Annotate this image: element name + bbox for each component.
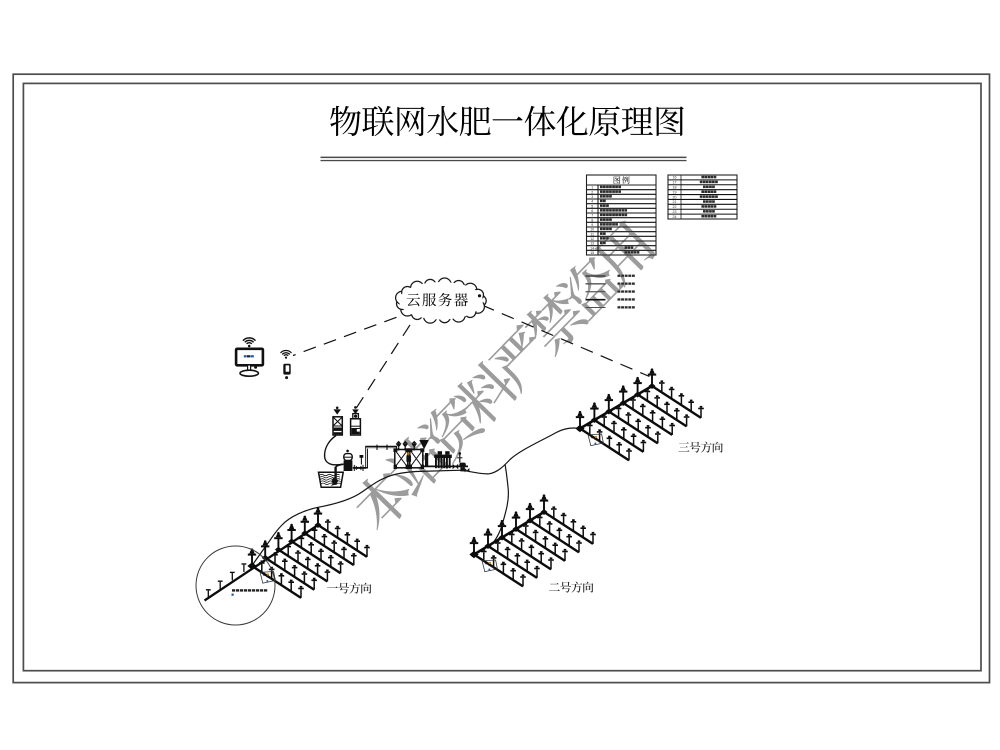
svg-text:5: 5 (591, 204, 593, 208)
svg-text:1: 1 (591, 186, 593, 190)
svg-text:4: 4 (591, 200, 593, 204)
svg-text:24: 24 (673, 215, 677, 219)
svg-text:16: 16 (673, 176, 677, 180)
svg-text:13: 13 (590, 242, 594, 246)
svg-text:18: 18 (673, 186, 677, 190)
svg-text:23: 23 (673, 210, 677, 214)
svg-text:11: 11 (590, 232, 594, 236)
svg-text:15: 15 (590, 251, 594, 255)
svg-text:14: 14 (590, 246, 594, 250)
svg-text:9: 9 (591, 223, 593, 227)
svg-text:10: 10 (590, 228, 594, 232)
svg-text:20: 20 (673, 195, 677, 199)
svg-text:12: 12 (590, 237, 594, 241)
svg-text:8: 8 (591, 218, 593, 222)
svg-text:17: 17 (673, 181, 677, 185)
svg-text:2: 2 (591, 190, 593, 194)
svg-text:7: 7 (591, 214, 593, 218)
svg-text:19: 19 (673, 190, 677, 194)
svg-text:3: 3 (591, 195, 593, 199)
svg-text:21: 21 (673, 200, 677, 204)
svg-text:22: 22 (673, 205, 677, 209)
svg-text:6: 6 (591, 209, 593, 213)
